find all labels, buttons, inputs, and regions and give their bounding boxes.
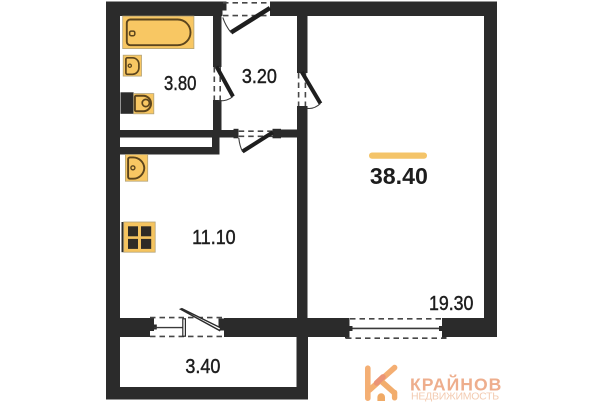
svg-text:38.40: 38.40 <box>370 163 428 189</box>
svg-text:НЕДВИЖИМОСТЬ: НЕДВИЖИМОСТЬ <box>411 391 499 403</box>
svg-text:3.80: 3.80 <box>164 72 197 95</box>
svg-text:19.30: 19.30 <box>429 292 474 315</box>
svg-text:3.20: 3.20 <box>242 65 277 88</box>
svg-text:11.10: 11.10 <box>192 226 236 249</box>
svg-text:3.40: 3.40 <box>185 355 220 378</box>
